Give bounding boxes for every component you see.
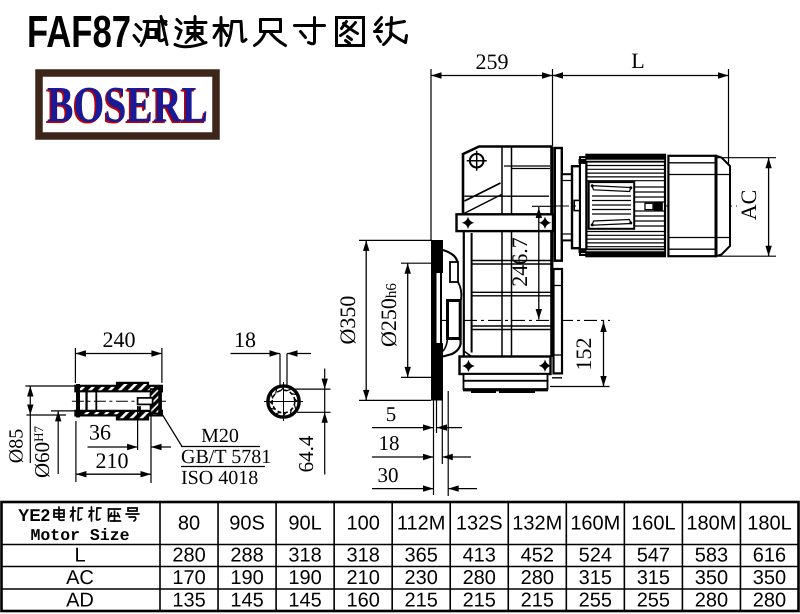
svg-text:152: 152: [571, 338, 596, 371]
svg-text:255: 255: [579, 590, 612, 612]
svg-text:80: 80: [178, 513, 200, 535]
svg-text:145: 145: [230, 590, 263, 612]
svg-text:190: 190: [230, 567, 263, 589]
svg-text:170: 170: [172, 567, 205, 589]
svg-text:215: 215: [405, 590, 438, 612]
svg-text:132M: 132M: [512, 513, 562, 535]
svg-text:524: 524: [579, 545, 612, 567]
svg-text:5: 5: [386, 402, 397, 426]
svg-text:18: 18: [234, 327, 256, 352]
svg-text:246.7: 246.7: [507, 237, 532, 287]
svg-text:YE2: YE2: [18, 506, 50, 525]
svg-text:230: 230: [405, 567, 438, 589]
svg-text:100: 100: [346, 513, 379, 535]
svg-text:AD: AD: [66, 590, 94, 612]
svg-text:215: 215: [521, 590, 554, 612]
svg-text:365: 365: [405, 545, 438, 567]
svg-text:36: 36: [89, 420, 111, 445]
svg-text:145: 145: [288, 590, 321, 612]
svg-text:90S: 90S: [229, 513, 265, 535]
svg-text:180L: 180L: [747, 513, 792, 535]
svg-text:215: 215: [463, 590, 496, 612]
svg-text:FAF87: FAF87: [27, 6, 131, 57]
svg-text:ISO 4018: ISO 4018: [181, 467, 258, 489]
svg-text:259: 259: [476, 49, 509, 74]
svg-text:30: 30: [378, 463, 399, 487]
svg-text:318: 318: [288, 545, 321, 567]
svg-text:L: L: [74, 545, 85, 567]
svg-text:112M: 112M: [397, 513, 446, 535]
svg-text:583: 583: [695, 545, 728, 567]
svg-text:64.4: 64.4: [294, 435, 318, 472]
svg-text:160L: 160L: [631, 513, 676, 535]
svg-text:413: 413: [463, 545, 496, 567]
svg-text:318: 318: [346, 545, 379, 567]
svg-text:BOSERL: BOSERL: [47, 78, 208, 134]
svg-text:315: 315: [579, 567, 612, 589]
svg-text:132S: 132S: [456, 513, 503, 535]
svg-text:280: 280: [753, 590, 786, 612]
svg-text:GB/T 5781: GB/T 5781: [181, 446, 271, 468]
svg-text:315: 315: [637, 567, 670, 589]
svg-text:280: 280: [463, 567, 496, 589]
svg-text:160M: 160M: [570, 513, 620, 535]
svg-text:Ø350: Ø350: [335, 296, 360, 345]
svg-text:616: 616: [753, 545, 786, 567]
svg-text:547: 547: [637, 545, 670, 567]
svg-text:350: 350: [695, 567, 728, 589]
svg-text:Motor Size: Motor Size: [30, 526, 129, 545]
svg-text:280: 280: [521, 567, 554, 589]
svg-text:280: 280: [695, 590, 728, 612]
svg-text:L: L: [631, 48, 644, 73]
svg-text:280: 280: [172, 545, 205, 567]
svg-text:180M: 180M: [686, 513, 736, 535]
svg-text:160: 160: [346, 590, 379, 612]
svg-text:255: 255: [637, 590, 670, 612]
svg-text:AC: AC: [66, 567, 94, 589]
svg-text:AC: AC: [736, 190, 761, 221]
svg-text:210: 210: [96, 448, 129, 473]
svg-text:452: 452: [521, 545, 554, 567]
svg-text:210: 210: [346, 567, 379, 589]
svg-text:288: 288: [230, 545, 263, 567]
svg-text:240: 240: [103, 327, 136, 352]
svg-text:18: 18: [379, 431, 400, 455]
svg-text:M20: M20: [201, 425, 239, 447]
svg-text:135: 135: [172, 590, 205, 612]
svg-text:350: 350: [753, 567, 786, 589]
svg-text:Ø85: Ø85: [6, 429, 28, 463]
svg-text:90L: 90L: [288, 513, 321, 535]
svg-text:190: 190: [288, 567, 321, 589]
